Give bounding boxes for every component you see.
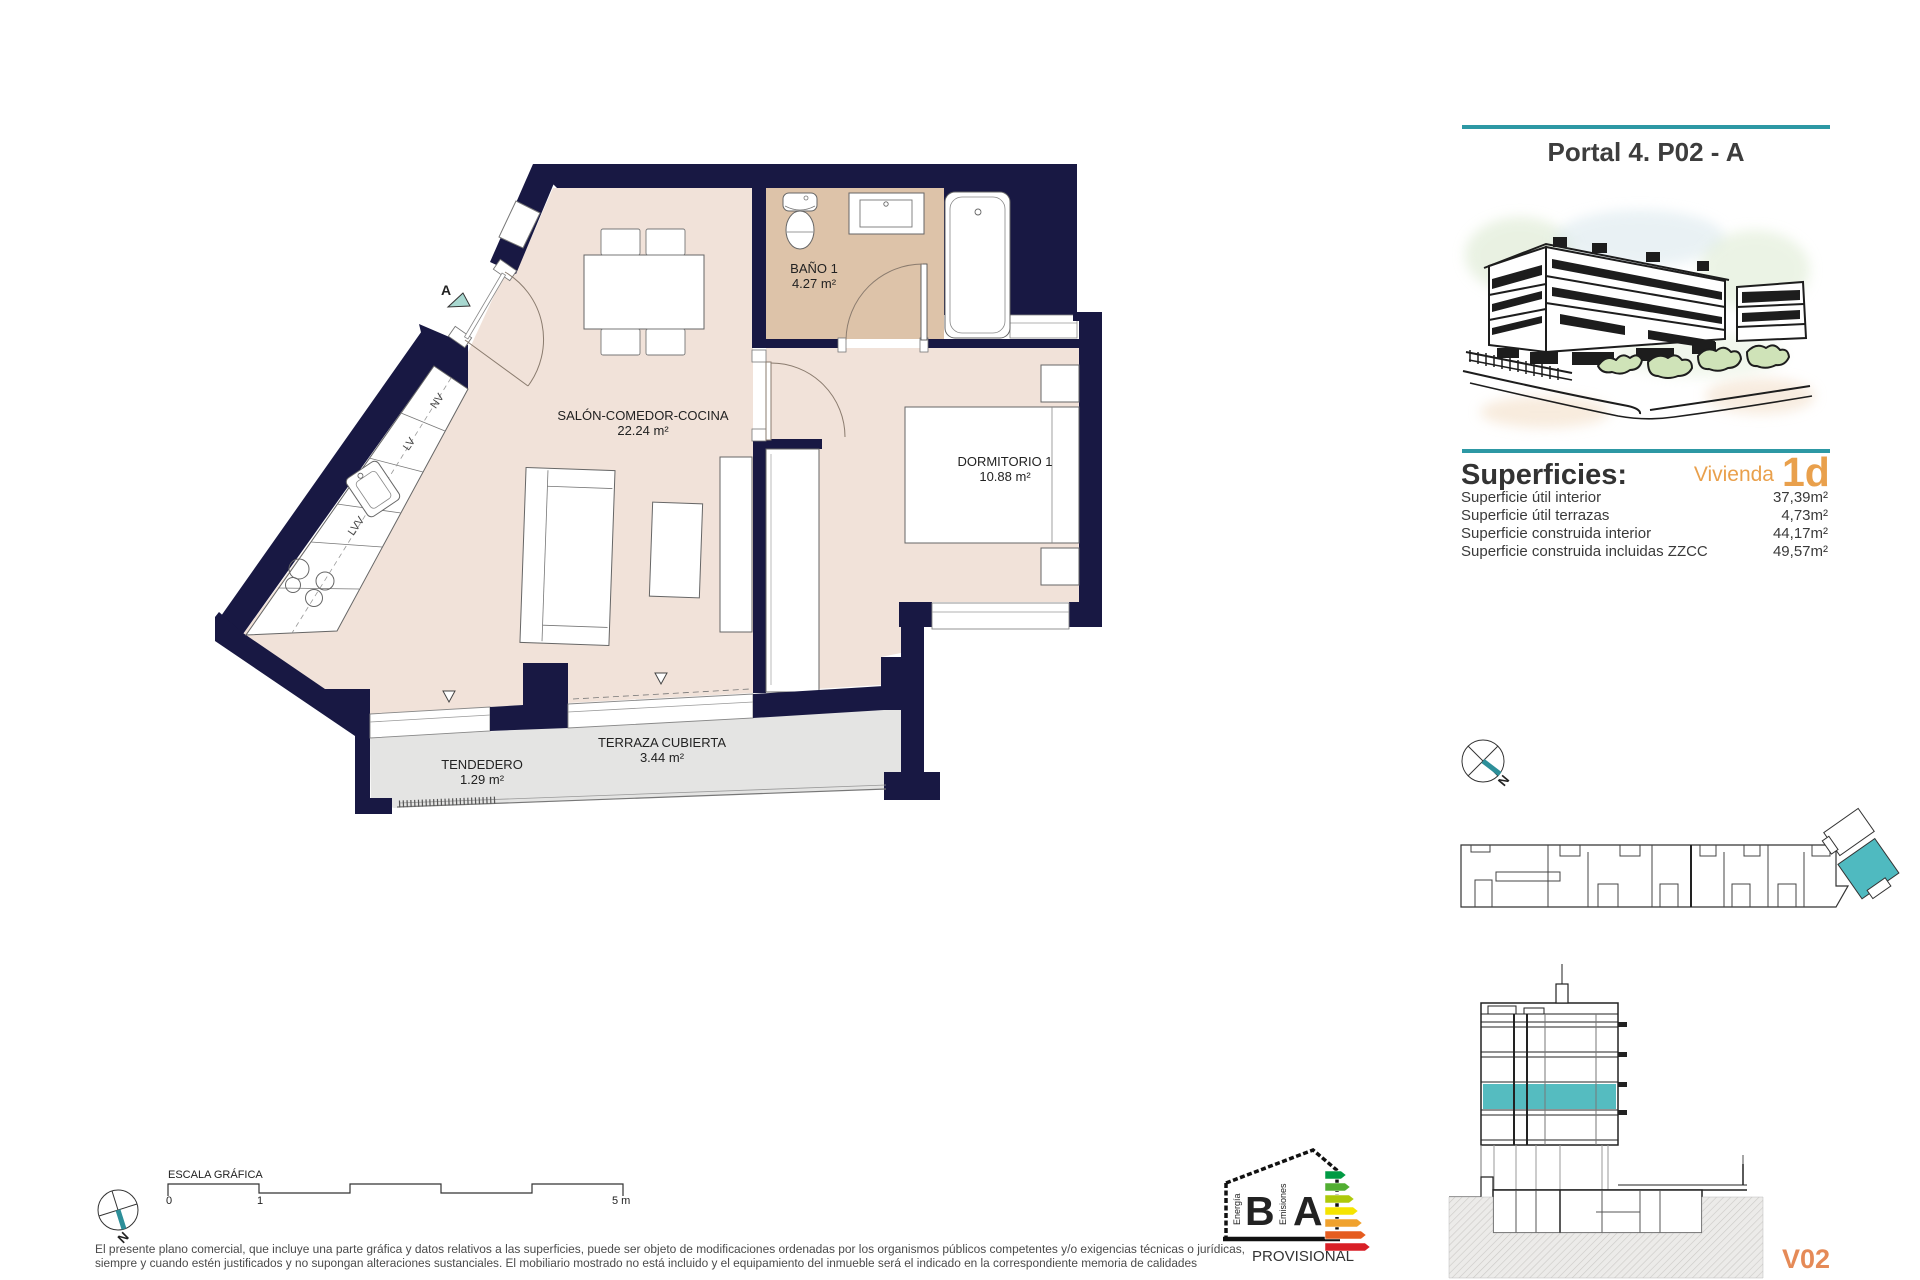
svg-text:TENDEDERO: TENDEDERO: [441, 757, 523, 772]
svg-text:3.44 m²: 3.44 m²: [640, 750, 685, 765]
svg-text:SALÓN-COMEDOR-COCINA: SALÓN-COMEDOR-COCINA: [557, 408, 729, 423]
svg-text:Superficie construida incluida: Superficie construida incluidas ZZCC: [1461, 543, 1708, 560]
svg-text:1: 1: [257, 1195, 263, 1207]
svg-text:Portal 4. P02 - A: Portal 4. P02 - A: [1548, 137, 1745, 167]
svg-text:Energía: Energía: [1232, 1193, 1242, 1225]
svg-text:37,39m²: 37,39m²: [1773, 489, 1828, 506]
svg-text:Superficie útil terrazas: Superficie útil terrazas: [1461, 507, 1609, 524]
svg-text:siempre y cuando estén justifi: siempre y cuando estén justificados y no…: [95, 1256, 1197, 1270]
svg-text:Superficies:: Superficies:: [1461, 459, 1627, 491]
svg-text:5 m: 5 m: [612, 1195, 630, 1207]
svg-text:B: B: [1245, 1188, 1275, 1234]
svg-text:A: A: [1293, 1188, 1323, 1234]
svg-text:49,57m²: 49,57m²: [1773, 543, 1828, 560]
svg-text:BAÑO 1: BAÑO 1: [790, 261, 838, 276]
svg-text:A: A: [441, 282, 451, 298]
svg-text:Vivienda: Vivienda: [1694, 463, 1774, 486]
svg-text:DORMITORIO 1: DORMITORIO 1: [957, 454, 1052, 469]
svg-text:PROVISIONAL: PROVISIONAL: [1252, 1248, 1354, 1265]
svg-text:Superficie útil interior: Superficie útil interior: [1461, 489, 1601, 506]
svg-text:Emisiones: Emisiones: [1278, 1183, 1288, 1225]
svg-text:1.29 m²: 1.29 m²: [460, 772, 505, 787]
svg-text:22.24 m²: 22.24 m²: [617, 423, 669, 438]
svg-text:ESCALA GRÁFICA: ESCALA GRÁFICA: [168, 1168, 263, 1181]
svg-text:Superficie construida interior: Superficie construida interior: [1461, 525, 1651, 542]
svg-text:El presente plano comercial, q: El presente plano comercial, que incluye…: [95, 1242, 1245, 1256]
svg-text:10.88 m²: 10.88 m²: [979, 469, 1031, 484]
svg-text:TERRAZA CUBIERTA: TERRAZA CUBIERTA: [598, 735, 726, 750]
svg-text:4,73m²: 4,73m²: [1781, 507, 1828, 524]
svg-text:0: 0: [166, 1195, 172, 1207]
svg-text:V02: V02: [1782, 1244, 1830, 1274]
svg-text:4.27 m²: 4.27 m²: [792, 276, 837, 291]
svg-text:44,17m²: 44,17m²: [1773, 525, 1828, 542]
